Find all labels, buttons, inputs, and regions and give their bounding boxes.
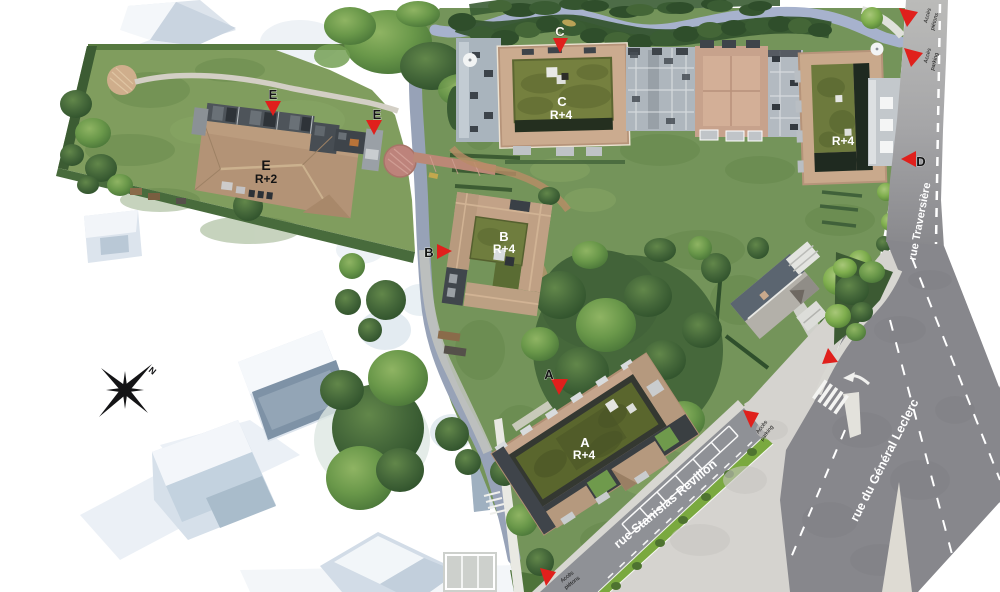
svg-text:E: E	[269, 87, 278, 102]
svg-text:R+4: R+4	[493, 242, 516, 256]
svg-text:R+4: R+4	[550, 108, 573, 122]
svg-text:C: C	[555, 24, 565, 39]
svg-text:D: D	[916, 154, 925, 169]
svg-text:R+4: R+4	[832, 134, 855, 148]
svg-text:C: C	[557, 94, 567, 109]
svg-text:R+2: R+2	[255, 172, 278, 186]
svg-text:E: E	[373, 107, 382, 122]
svg-text:E: E	[261, 157, 270, 173]
svg-text:R+4: R+4	[573, 448, 596, 462]
svg-text:B: B	[424, 245, 433, 260]
svg-text:A: A	[544, 367, 554, 382]
